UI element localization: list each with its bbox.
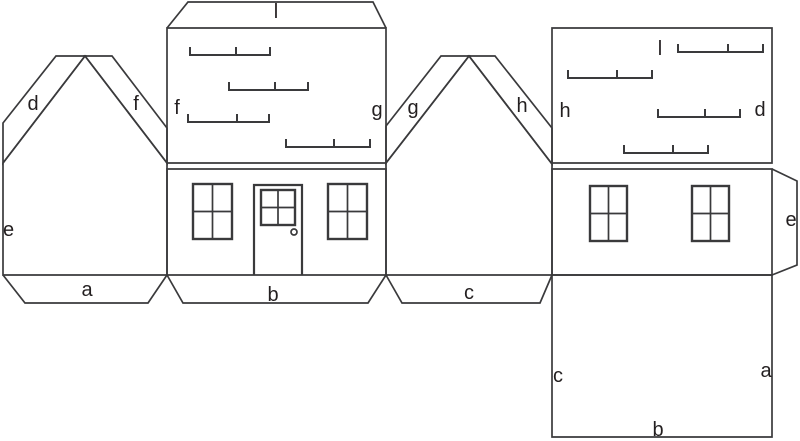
back-window-right xyxy=(692,186,729,241)
window-mullions xyxy=(692,186,729,241)
label-front-roof-ridge-tab-l: l xyxy=(274,1,278,23)
label-gable-left-edge-e: e xyxy=(3,219,14,241)
back-roof-piece: l h d xyxy=(552,28,772,163)
label-base-edge-a: a xyxy=(760,360,772,382)
shingle-mark xyxy=(286,139,370,147)
label-base-edge-c: c xyxy=(553,365,563,387)
gable-left-roof-tab-f xyxy=(85,56,167,163)
label-front-wall-tab-b: b xyxy=(267,284,278,306)
window-mullions xyxy=(328,184,367,239)
shingle-mark xyxy=(229,82,308,90)
shingle-mark xyxy=(188,114,269,122)
gable-left-piece: d f e a xyxy=(3,56,167,303)
front-door xyxy=(254,185,302,275)
gable-mid-roof-tab-h xyxy=(469,56,552,164)
front-wall-piece: b xyxy=(167,169,386,306)
shingle-mark xyxy=(190,47,270,55)
label-gable-mid-tab-g: g xyxy=(407,97,418,119)
gable-mid-piece: g h c xyxy=(386,56,552,304)
label-back-roof-edge-h: h xyxy=(559,100,570,122)
label-gable-left-tab-a: a xyxy=(81,279,93,301)
base-outline xyxy=(552,275,772,437)
window-mullions xyxy=(193,184,232,239)
gable-left-outline xyxy=(3,56,167,275)
label-back-roof-ridge-l: l xyxy=(658,38,662,60)
shingle-mark xyxy=(658,109,740,117)
label-back-roof-edge-d: d xyxy=(754,99,765,121)
shingle-mark xyxy=(568,70,652,78)
label-gable-left-tab-f: f xyxy=(133,93,139,115)
back-wall-outline xyxy=(552,169,772,275)
papercraft-house-net: d f e a l f g xyxy=(0,0,800,441)
label-back-wall-tab-e: e xyxy=(785,209,796,231)
window-mullions xyxy=(590,186,627,241)
label-base-edge-b: b xyxy=(652,419,663,441)
back-window-left xyxy=(590,186,627,241)
shingle-mark xyxy=(678,44,763,52)
back-wall-piece: e xyxy=(552,169,797,275)
front-roof-outline xyxy=(167,28,386,163)
label-front-roof-edge-g: g xyxy=(371,99,382,121)
door-window-mullions xyxy=(261,190,295,225)
front-roof-piece: l f g xyxy=(167,1,386,163)
label-front-roof-edge-f: f xyxy=(174,97,180,119)
gable-mid-roof-tab-g xyxy=(386,56,469,163)
net-diagram-svg: d f e a l f g xyxy=(0,0,800,441)
gable-left-roof-tab-d xyxy=(3,56,85,163)
label-gable-mid-tab-h: h xyxy=(516,95,527,117)
door-knob xyxy=(291,229,297,235)
label-gable-left-tab-d: d xyxy=(27,93,38,115)
front-window-right xyxy=(328,184,367,239)
base-piece: c a b xyxy=(552,275,772,441)
front-window-left xyxy=(193,184,232,239)
gable-mid-outline xyxy=(386,56,552,275)
label-gable-mid-tab-c: c xyxy=(464,282,474,304)
shingle-mark xyxy=(624,145,708,153)
